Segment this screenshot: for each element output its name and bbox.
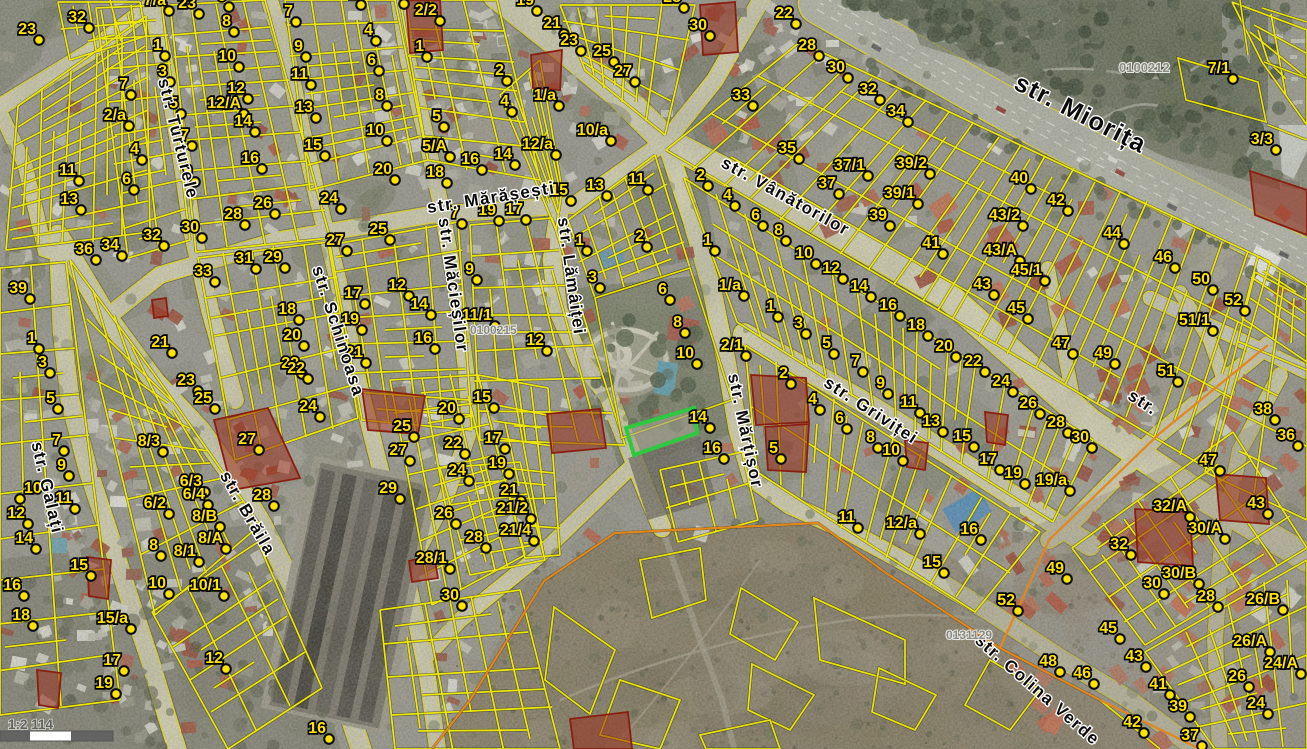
- svg-text:22: 22: [444, 435, 462, 452]
- svg-text:25: 25: [369, 221, 387, 238]
- svg-text:9: 9: [57, 457, 66, 474]
- svg-text:17: 17: [979, 451, 997, 468]
- svg-text:5/A: 5/A: [422, 138, 447, 155]
- svg-text:7: 7: [52, 432, 61, 449]
- svg-text:2: 2: [635, 228, 644, 245]
- svg-text:6: 6: [658, 281, 667, 298]
- svg-text:8: 8: [866, 429, 875, 446]
- svg-text:16: 16: [414, 330, 432, 347]
- svg-text:28: 28: [663, 0, 681, 6]
- svg-text:12/a: 12/a: [522, 136, 553, 153]
- svg-text:8/1: 8/1: [174, 543, 196, 560]
- svg-text:9: 9: [876, 375, 885, 392]
- svg-text:47: 47: [1052, 335, 1070, 352]
- svg-text:22: 22: [964, 353, 982, 370]
- svg-text:11: 11: [838, 509, 855, 526]
- svg-text:23: 23: [18, 21, 36, 38]
- svg-text:24: 24: [448, 462, 466, 479]
- svg-text:43: 43: [973, 276, 991, 293]
- svg-text:47: 47: [1199, 452, 1217, 469]
- svg-text:50: 50: [1192, 271, 1210, 288]
- svg-text:37: 37: [818, 175, 836, 192]
- svg-text:8/B: 8/B: [192, 508, 217, 525]
- svg-text:43: 43: [1125, 648, 1143, 665]
- svg-text:27: 27: [238, 431, 256, 448]
- svg-text:2: 2: [495, 62, 504, 79]
- svg-text:11: 11: [291, 66, 308, 83]
- svg-text:1/a: 1/a: [719, 277, 741, 294]
- svg-text:26/B: 26/B: [1246, 591, 1280, 608]
- svg-text:48: 48: [1039, 653, 1057, 670]
- svg-text:8: 8: [149, 537, 158, 554]
- svg-text:10: 10: [148, 575, 166, 592]
- svg-text:2: 2: [779, 365, 788, 382]
- svg-text:46: 46: [1154, 249, 1172, 266]
- svg-text:24: 24: [320, 190, 338, 207]
- svg-text:1: 1: [766, 298, 775, 315]
- svg-text:12: 12: [388, 277, 406, 294]
- svg-text:43/2: 43/2: [989, 207, 1020, 224]
- svg-text:27: 27: [389, 442, 407, 459]
- svg-text:30/A: 30/A: [1188, 520, 1222, 537]
- svg-text:7: 7: [851, 353, 860, 370]
- svg-text:32/A: 32/A: [1153, 498, 1187, 515]
- svg-text:5: 5: [822, 335, 831, 352]
- svg-text:9: 9: [294, 38, 303, 55]
- svg-text:9: 9: [465, 261, 474, 278]
- svg-text:18: 18: [907, 317, 925, 334]
- svg-text:28: 28: [224, 206, 242, 223]
- svg-text:45: 45: [1007, 300, 1025, 317]
- svg-text:12: 12: [526, 332, 544, 349]
- svg-text:3: 3: [38, 354, 47, 371]
- svg-text:3: 3: [588, 269, 597, 286]
- svg-text:30/B: 30/B: [1162, 565, 1196, 582]
- svg-text:24: 24: [299, 398, 317, 415]
- svg-text:7/a: 7/a: [144, 0, 166, 9]
- svg-text:19: 19: [516, 0, 534, 9]
- svg-text:36: 36: [1277, 427, 1295, 444]
- svg-text:11: 11: [900, 394, 917, 411]
- svg-text:8/A: 8/A: [198, 530, 223, 547]
- svg-text:20: 20: [438, 400, 456, 417]
- svg-text:32: 32: [68, 9, 86, 26]
- svg-text:30: 30: [1071, 429, 1089, 446]
- svg-text:28: 28: [253, 487, 271, 504]
- svg-text:28: 28: [798, 37, 816, 54]
- svg-text:16: 16: [960, 521, 978, 538]
- svg-text:2: 2: [696, 167, 705, 184]
- svg-text:6: 6: [122, 171, 131, 188]
- svg-text:14: 14: [494, 146, 512, 163]
- svg-text:23: 23: [560, 32, 578, 49]
- svg-text:4: 4: [364, 22, 373, 39]
- svg-text:23: 23: [178, 0, 196, 12]
- svg-text:12: 12: [7, 505, 25, 522]
- svg-text:15: 15: [70, 557, 88, 574]
- svg-text:16: 16: [879, 297, 897, 314]
- svg-text:20: 20: [374, 161, 392, 178]
- svg-text:14: 14: [15, 530, 33, 547]
- svg-text:38: 38: [1254, 401, 1272, 418]
- svg-text:13: 13: [922, 413, 940, 430]
- svg-text:6: 6: [217, 0, 226, 5]
- svg-text:6/3: 6/3: [180, 473, 202, 490]
- svg-text:18: 18: [12, 607, 30, 624]
- svg-text:30: 30: [441, 587, 459, 604]
- svg-text:15: 15: [304, 137, 322, 154]
- svg-text:39/2: 39/2: [896, 155, 927, 172]
- svg-text:11: 11: [628, 171, 645, 188]
- svg-text:0100215: 0100215: [470, 323, 517, 337]
- svg-text:27: 27: [326, 232, 344, 249]
- svg-text:18: 18: [278, 301, 296, 318]
- svg-text:6: 6: [835, 410, 844, 427]
- svg-text:6: 6: [367, 52, 376, 69]
- svg-text:52: 52: [1224, 292, 1242, 309]
- svg-text:1/a: 1/a: [534, 87, 556, 104]
- svg-text:10: 10: [218, 48, 236, 65]
- svg-text:32: 32: [1110, 536, 1128, 553]
- svg-text:26: 26: [435, 505, 453, 522]
- svg-text:2/a: 2/a: [104, 107, 126, 124]
- svg-text:35: 35: [778, 140, 796, 157]
- svg-text:5: 5: [46, 390, 55, 407]
- svg-text:15: 15: [473, 389, 491, 406]
- svg-text:0131129: 0131129: [946, 628, 992, 642]
- svg-text:44: 44: [1103, 225, 1121, 242]
- svg-text:3/3: 3/3: [1251, 131, 1273, 148]
- svg-text:46: 46: [1073, 665, 1091, 682]
- svg-text:0100212: 0100212: [1119, 60, 1170, 75]
- svg-text:24: 24: [992, 373, 1010, 390]
- svg-text:28: 28: [465, 529, 483, 546]
- svg-text:45: 45: [1099, 620, 1117, 637]
- svg-text:1: 1: [703, 232, 712, 249]
- svg-text:25: 25: [194, 390, 212, 407]
- svg-text:10/1: 10/1: [190, 577, 221, 594]
- svg-text:16: 16: [241, 150, 259, 167]
- svg-text:42: 42: [1123, 714, 1141, 731]
- svg-text:25: 25: [393, 418, 411, 435]
- svg-text:20: 20: [935, 338, 953, 355]
- svg-text:19: 19: [488, 455, 506, 472]
- svg-text:32: 32: [143, 227, 161, 244]
- svg-text:8: 8: [375, 87, 384, 104]
- svg-text:28: 28: [1047, 414, 1065, 431]
- svg-text:26: 26: [1228, 668, 1246, 685]
- svg-text:20: 20: [283, 327, 301, 344]
- svg-text:49: 49: [1094, 345, 1112, 362]
- svg-text:22: 22: [287, 360, 305, 377]
- svg-text:33: 33: [732, 87, 750, 104]
- svg-text:26/A: 26/A: [1233, 633, 1267, 650]
- svg-text:13: 13: [60, 191, 78, 208]
- svg-text:2/1: 2/1: [721, 337, 743, 354]
- svg-text:28/1: 28/1: [416, 550, 447, 567]
- svg-text:10: 10: [882, 442, 900, 459]
- svg-text:2/2: 2/2: [415, 2, 437, 19]
- svg-text:24: 24: [1247, 695, 1265, 712]
- svg-text:22: 22: [775, 5, 793, 22]
- svg-text:43/A: 43/A: [983, 242, 1017, 259]
- svg-text:27: 27: [614, 63, 632, 80]
- svg-text:29: 29: [379, 480, 397, 497]
- svg-text:5: 5: [769, 440, 778, 457]
- svg-text:4: 4: [130, 141, 139, 158]
- svg-text:18: 18: [426, 164, 444, 181]
- svg-text:30: 30: [827, 59, 845, 76]
- svg-text:39: 39: [1169, 698, 1187, 715]
- svg-text:21/4: 21/4: [500, 522, 531, 539]
- svg-text:16: 16: [308, 720, 326, 737]
- svg-text:21: 21: [151, 334, 169, 351]
- svg-text:30: 30: [1143, 575, 1161, 592]
- svg-text:21: 21: [500, 482, 518, 499]
- svg-text:16: 16: [3, 577, 21, 594]
- svg-text:10/a: 10/a: [577, 122, 608, 139]
- svg-text:30: 30: [689, 17, 707, 34]
- svg-text:26: 26: [1019, 395, 1037, 412]
- svg-text:12/a: 12/a: [886, 515, 917, 532]
- svg-text:37/1: 37/1: [834, 157, 865, 174]
- svg-text:34: 34: [101, 237, 119, 254]
- svg-text:15/a: 15/a: [97, 610, 128, 627]
- svg-text:41: 41: [922, 235, 940, 252]
- svg-text:37: 37: [1181, 727, 1199, 744]
- svg-text:21/2: 21/2: [497, 500, 528, 517]
- svg-text:16: 16: [703, 440, 721, 457]
- svg-text:40: 40: [1010, 170, 1028, 187]
- svg-text:17: 17: [484, 430, 502, 447]
- svg-text:33: 33: [194, 263, 212, 280]
- svg-text:34: 34: [887, 103, 905, 120]
- svg-text:32: 32: [859, 81, 877, 98]
- svg-text:1:2 114: 1:2 114: [8, 717, 54, 732]
- svg-text:13: 13: [295, 99, 313, 116]
- svg-text:4: 4: [808, 391, 817, 408]
- svg-text:3: 3: [794, 315, 803, 332]
- svg-text:26: 26: [254, 195, 272, 212]
- svg-text:8: 8: [673, 314, 682, 331]
- svg-text:8: 8: [222, 13, 231, 30]
- svg-text:52: 52: [997, 592, 1015, 609]
- svg-text:14: 14: [850, 278, 868, 295]
- svg-text:14: 14: [234, 113, 252, 130]
- svg-text:21: 21: [543, 15, 561, 32]
- svg-text:7: 7: [119, 76, 128, 93]
- svg-text:7/1: 7/1: [1208, 60, 1230, 77]
- svg-text:30: 30: [181, 219, 199, 236]
- svg-text:23: 23: [177, 372, 195, 389]
- svg-text:2: 2: [349, 0, 358, 3]
- svg-text:7: 7: [284, 3, 293, 20]
- svg-text:12: 12: [822, 260, 840, 277]
- svg-text:45/1: 45/1: [1011, 262, 1042, 279]
- svg-text:1: 1: [153, 37, 162, 54]
- svg-text:39/1: 39/1: [884, 185, 915, 202]
- svg-text:1: 1: [27, 330, 36, 347]
- svg-text:12: 12: [205, 650, 223, 667]
- svg-text:8/3: 8/3: [138, 433, 160, 450]
- svg-text:39: 39: [869, 207, 887, 224]
- svg-text:1: 1: [415, 38, 424, 55]
- svg-text:6: 6: [751, 207, 760, 224]
- svg-text:11: 11: [59, 162, 76, 179]
- svg-text:13: 13: [586, 177, 604, 194]
- svg-text:14: 14: [689, 409, 707, 426]
- svg-text:15: 15: [953, 428, 971, 445]
- svg-text:3/1: 3/1: [379, 0, 401, 2]
- svg-text:36: 36: [75, 241, 93, 258]
- svg-text:8: 8: [774, 222, 783, 239]
- svg-text:31: 31: [235, 250, 253, 267]
- svg-text:28: 28: [1197, 588, 1215, 605]
- svg-text:29: 29: [264, 249, 282, 266]
- svg-text:6/2: 6/2: [144, 495, 166, 512]
- svg-text:39: 39: [9, 280, 27, 297]
- svg-text:15: 15: [923, 554, 941, 571]
- svg-text:5: 5: [432, 108, 441, 125]
- svg-text:41: 41: [1149, 676, 1167, 693]
- svg-text:25: 25: [593, 43, 611, 60]
- svg-text:10: 10: [676, 345, 694, 362]
- svg-text:16: 16: [461, 151, 479, 168]
- svg-text:51/1: 51/1: [1179, 312, 1210, 329]
- svg-text:10: 10: [366, 122, 384, 139]
- svg-text:4: 4: [500, 93, 509, 110]
- svg-text:19: 19: [1004, 465, 1022, 482]
- svg-text:12/A: 12/A: [207, 95, 241, 112]
- svg-text:4: 4: [723, 187, 732, 204]
- svg-text:14: 14: [410, 296, 428, 313]
- svg-text:19/a: 19/a: [1036, 472, 1067, 489]
- svg-text:49: 49: [1046, 560, 1064, 577]
- svg-text:17: 17: [344, 285, 362, 302]
- svg-text:42: 42: [1047, 192, 1065, 209]
- svg-text:24/A: 24/A: [1264, 655, 1298, 672]
- svg-text:17: 17: [103, 652, 121, 669]
- svg-text:51: 51: [1157, 363, 1175, 380]
- svg-text:43: 43: [1247, 495, 1265, 512]
- svg-text:19: 19: [95, 675, 113, 692]
- svg-text:10: 10: [795, 245, 813, 262]
